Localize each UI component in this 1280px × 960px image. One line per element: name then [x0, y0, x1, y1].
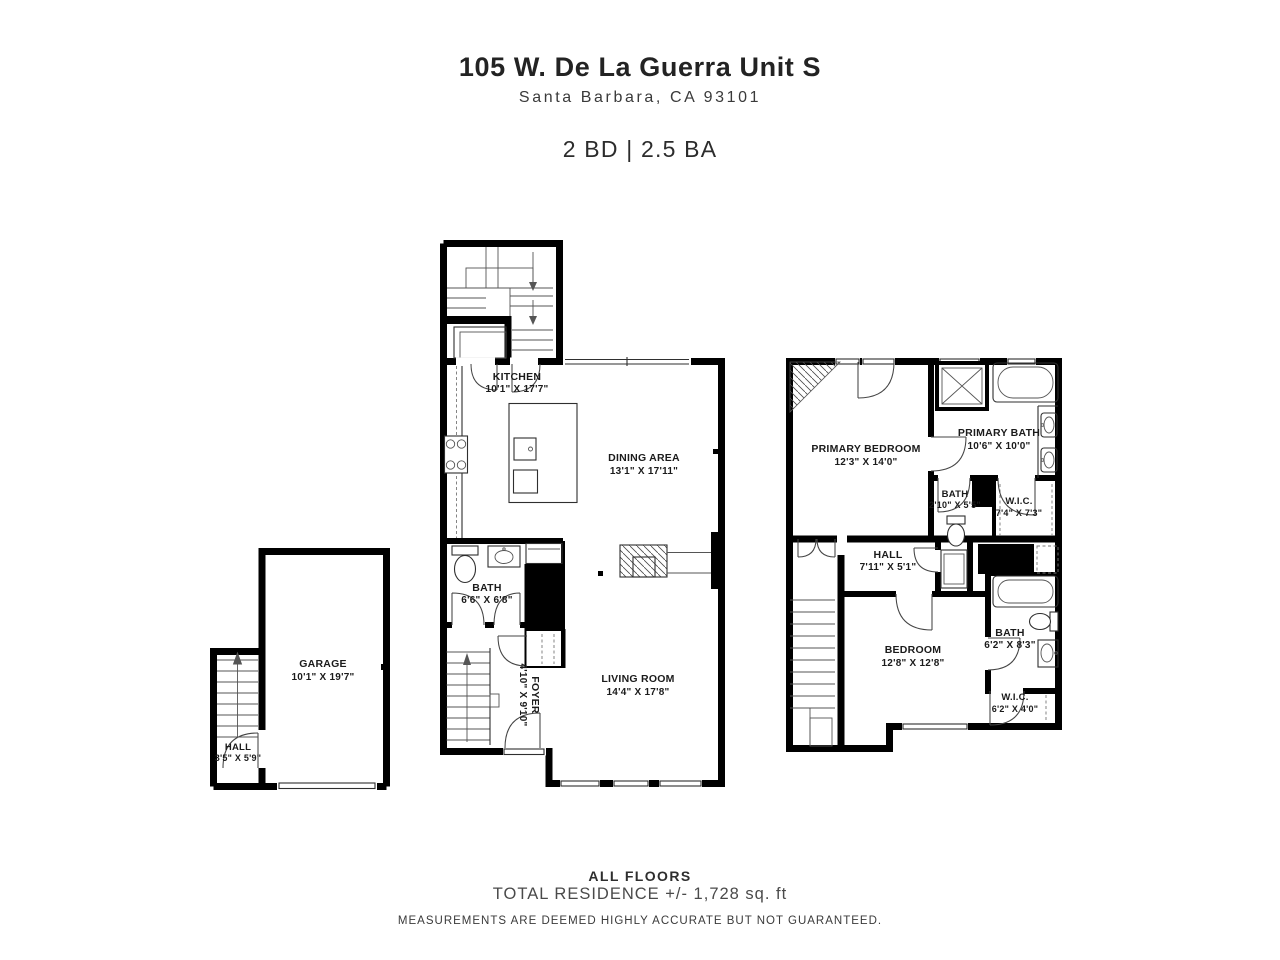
room-dims-bath-small: 2'10" X 5'5": [929, 500, 981, 510]
kitchen-island: [509, 404, 577, 503]
floor-plan-page: 105 W. De La Guerra Unit S Santa Barbara…: [0, 0, 1280, 960]
room-label-foyer: FOYER: [529, 676, 541, 714]
bathtub-fixture: [993, 576, 1058, 607]
main-level-plan: KITCHEN 10'1" X 17'7" DINING AREA 13'1" …: [441, 244, 722, 788]
shower-fixture: [937, 363, 987, 409]
closet: [498, 630, 565, 667]
room-dims-bath-main: 6'6" X 6'8": [461, 595, 512, 606]
cabinet: [526, 544, 562, 564]
washer-fixture: [941, 550, 967, 588]
room-label-wic-primary: W.I.C.: [1005, 496, 1032, 507]
room-dims-kitchen: 10'1" X 17'7": [485, 384, 548, 395]
stove-fixture: [445, 436, 468, 473]
stairs: [447, 648, 500, 745]
sink-fixture: [488, 546, 520, 567]
bathtub-fixture: [993, 363, 1058, 402]
room-label-dining: DINING AREA: [608, 452, 680, 464]
stairs: [441, 247, 553, 362]
room-dims-bath-upper: 6'2" X 8'3": [984, 640, 1035, 651]
sloped-ceiling-hatch: [790, 362, 840, 412]
stairs: [790, 600, 835, 746]
total-area-label: TOTAL RESIDENCE +/- 1,728 sq. ft: [0, 885, 1280, 904]
room-label-garage: GARAGE: [299, 658, 347, 670]
room-label-bedroom: BEDROOM: [885, 644, 942, 656]
toilet-fixture: [452, 546, 478, 583]
chase: [525, 564, 564, 630]
door-swing: [798, 362, 1035, 725]
linen-closet: [1037, 546, 1058, 573]
floor-plan-canvas: GARAGE 10'1" X 19'7" HALL 3'5" X 5'9": [0, 0, 1280, 960]
stairs: [217, 653, 258, 738]
upper-level-plan: PRIMARY BEDROOM 12'3" X 14'0" PRIMARY BA…: [786, 358, 1059, 749]
dimension-tick: [713, 449, 719, 454]
room-label-bath-upper: BATH: [995, 627, 1024, 639]
room-dims-dining: 13'1" X 17'11": [610, 466, 678, 477]
disclaimer: MEASUREMENTS ARE DEEMED HIGHLY ACCURATE …: [0, 915, 1280, 927]
toilet-fixture: [1030, 612, 1059, 631]
dimension-tick: [318, 548, 386, 670]
window: [563, 357, 691, 366]
garage-level-plan: GARAGE 10'1" X 19'7" HALL 3'5" X 5'9": [214, 548, 387, 791]
room-label-bath-small: BATH: [942, 489, 969, 500]
room-dims-garage-hall: 3'5" X 5'9": [215, 753, 262, 763]
room-dims-primary-bath: 10'6" X 10'0": [967, 441, 1030, 452]
room-dims-wic-primary: 7'4" X 7'3": [996, 508, 1043, 518]
room-label-primary-bedroom: PRIMARY BEDROOM: [811, 443, 920, 455]
window: [560, 780, 702, 788]
room-dims-primary-bedroom: 12'3" X 14'0": [834, 457, 897, 468]
room-dims-foyer: 4'10" X 9'10": [517, 663, 528, 726]
room-label-bath-main: BATH: [472, 582, 501, 594]
room-dims-wic-bedroom: 6'2" X 4'0": [992, 704, 1039, 714]
room-label-kitchen: KITCHEN: [493, 371, 541, 383]
all-floors-label: ALL FLOORS: [0, 868, 1280, 884]
room-label-living: LIVING ROOM: [601, 673, 674, 685]
room-label-hall-upper: HALL: [874, 549, 903, 561]
toilet-fixture: [947, 516, 965, 546]
chase: [978, 544, 1034, 574]
room-dims-bedroom: 12'8" X 12'8": [881, 658, 944, 669]
room-label-foyer-group: FOYER 4'10" X 9'10": [517, 663, 541, 726]
room-label-garage-hall: HALL: [225, 742, 251, 753]
room-label-primary-bath: PRIMARY BATH: [958, 427, 1040, 439]
room-label-wic-bedroom: W.I.C.: [1001, 692, 1028, 703]
window: [902, 723, 968, 731]
room-dims-hall-upper: 7'11" X 5'1": [860, 562, 917, 573]
room-dims-living: 14'4" X 17'8": [606, 687, 669, 698]
fireplace: [598, 532, 722, 589]
room-dims-garage: 10'1" X 19'7": [291, 672, 354, 683]
